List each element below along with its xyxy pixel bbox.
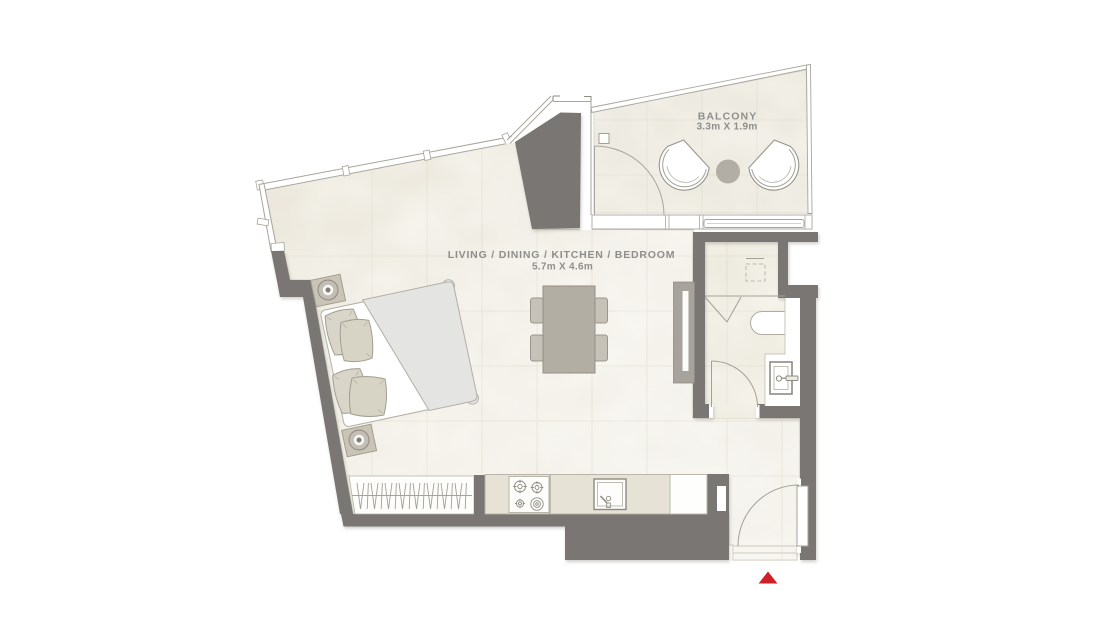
svg-text:LIVING / DINING / KITCHEN / BE: LIVING / DINING / KITCHEN / BEDROOM bbox=[448, 249, 676, 261]
svg-text:3.3m X 1.9m: 3.3m X 1.9m bbox=[696, 122, 757, 133]
svg-text:5.7m X 4.6m: 5.7m X 4.6m bbox=[532, 262, 593, 273]
